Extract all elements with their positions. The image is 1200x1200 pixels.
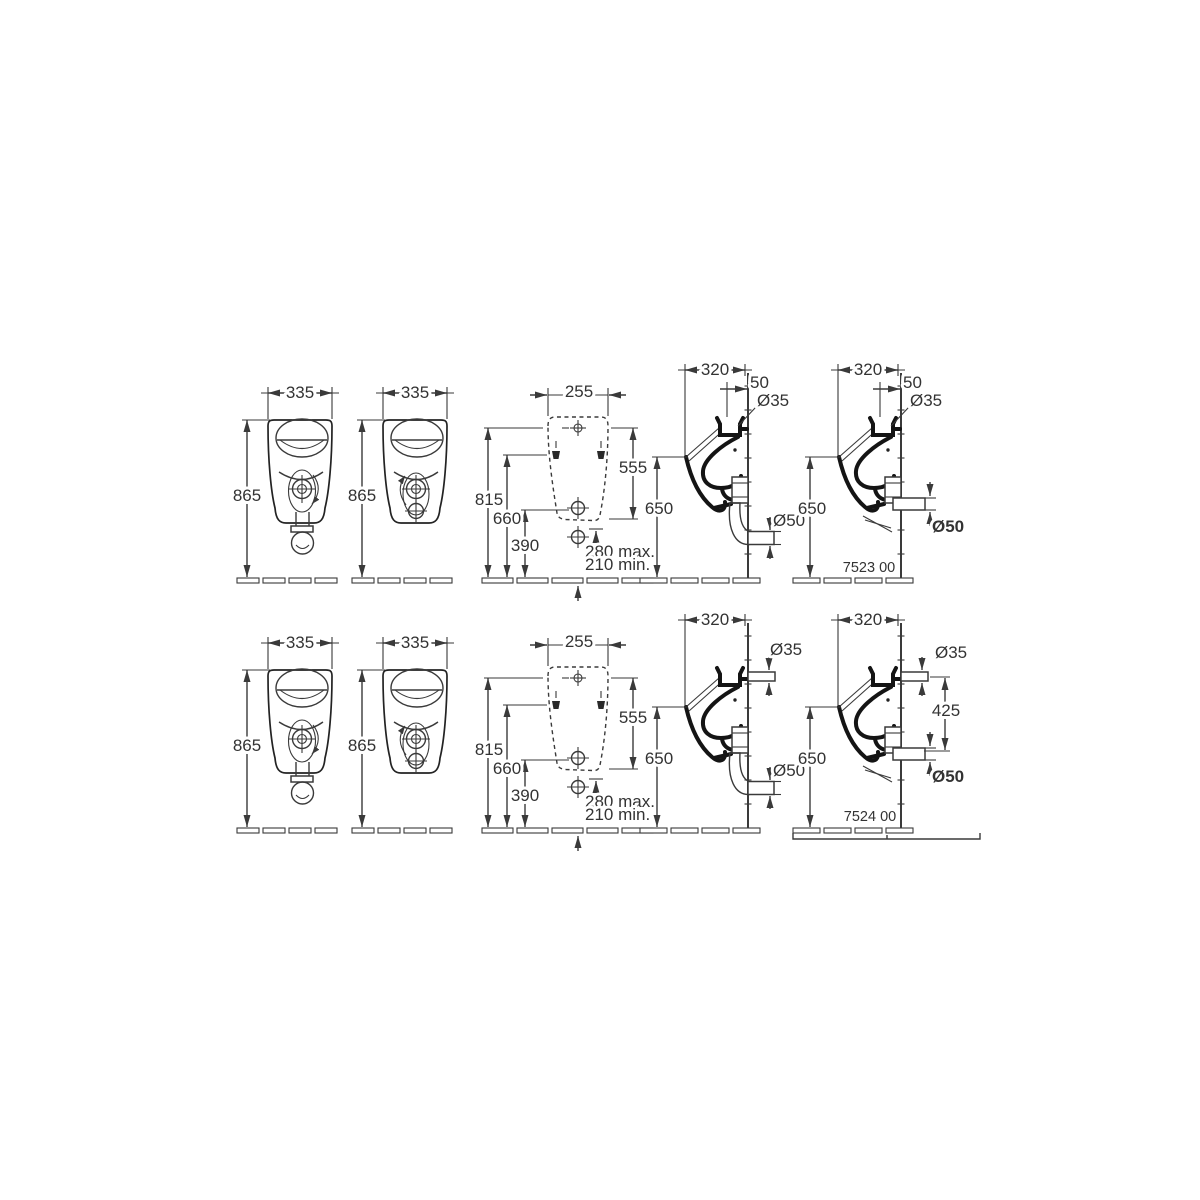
drain-diameter-label: Ø50 bbox=[932, 517, 964, 536]
dim-depth-label: 320 bbox=[854, 360, 882, 379]
row-variant-7524: 335 865 335 865 255 815 660 390 555 280 … bbox=[233, 610, 980, 851]
side-view-exposed-trap: 320 50 Ø35 650 Ø50 bbox=[640, 360, 805, 583]
sheet-border-mark bbox=[793, 833, 980, 839]
floor bbox=[482, 828, 653, 833]
dim-spread-label: 555 bbox=[619, 708, 647, 727]
urinal-profile bbox=[686, 418, 748, 511]
wall bbox=[745, 623, 752, 828]
outlet-min-label: 210 min. bbox=[585, 805, 650, 824]
urinal-body bbox=[383, 419, 447, 523]
floor bbox=[352, 828, 452, 833]
outlet-min-label: 210 min. bbox=[585, 555, 650, 574]
floor bbox=[640, 578, 760, 583]
dim-inlet-to-drain-label: 425 bbox=[932, 701, 960, 720]
mounting-dimensions-view: 255 815 660 390 555 280 max. 210 min. bbox=[475, 632, 655, 851]
dim-rim-height-label: 650 bbox=[798, 499, 826, 518]
floor bbox=[793, 578, 913, 583]
inlet-diameter-label: Ø35 bbox=[935, 643, 967, 662]
dim-width-label: 255 bbox=[565, 382, 593, 401]
dim-fixing-height-label: 660 bbox=[493, 759, 521, 778]
dim-depth-label: 320 bbox=[701, 610, 729, 629]
urinal-dimension-drawing: 335 865 335 865 255 815 660 390 555 280 … bbox=[0, 0, 1200, 1200]
front-view-concealed: 335 865 bbox=[348, 383, 454, 583]
side-view-exposed-trap: 320 Ø35 650 Ø50 bbox=[640, 610, 805, 833]
dim-rim-height-label: 650 bbox=[645, 749, 673, 768]
dim-width-label: 335 bbox=[286, 383, 314, 402]
urinal-body bbox=[268, 419, 332, 523]
dim-height-label: 865 bbox=[233, 736, 261, 755]
drain-diameter-label: Ø50 bbox=[932, 767, 964, 786]
urinal-body bbox=[383, 669, 447, 773]
dim-width-label: 335 bbox=[401, 633, 429, 652]
inlet-annotation bbox=[748, 657, 775, 696]
dim-inlet-offset-label: 50 bbox=[750, 373, 769, 392]
dim-inlet-height-label: 815 bbox=[475, 740, 503, 759]
floor bbox=[352, 578, 452, 583]
front-view-concealed: 335 865 bbox=[348, 633, 454, 833]
dim-spread-label: 555 bbox=[619, 458, 647, 477]
floor bbox=[237, 578, 337, 583]
model-number: 7523 00 bbox=[843, 560, 895, 576]
front-view-flush-valve: 335 865 bbox=[233, 633, 339, 833]
inlet-annotation bbox=[901, 657, 928, 696]
dim-depth-label: 320 bbox=[854, 610, 882, 629]
inlet-diameter-label: Ø35 bbox=[910, 391, 942, 410]
front-view-flush-valve: 335 865 bbox=[233, 383, 339, 583]
model-number: 7524 00 bbox=[844, 809, 896, 825]
side-view-concealed-outlet: 320 50 Ø35 650 Ø50 7523 00 bbox=[793, 360, 964, 583]
dim-height-label: 865 bbox=[348, 736, 376, 755]
dim-outlet-height-label: 390 bbox=[511, 536, 539, 555]
mounting-dimensions-view: 255 815 660 390 555 280 max. 210 min. bbox=[475, 382, 655, 601]
dim-height-label: 865 bbox=[233, 486, 261, 505]
dim-rim-height-label: 650 bbox=[798, 749, 826, 768]
dim-rim-height-label: 650 bbox=[645, 499, 673, 518]
wall bbox=[745, 373, 752, 578]
wall bbox=[898, 623, 905, 828]
urinal-profile bbox=[839, 668, 901, 761]
wall bbox=[898, 373, 905, 578]
floor bbox=[793, 828, 913, 833]
dim-fixing-height-label: 660 bbox=[493, 509, 521, 528]
floor bbox=[482, 578, 653, 583]
floor bbox=[640, 828, 760, 833]
dim-inlet-height-label: 815 bbox=[475, 490, 503, 509]
dim-width-label: 255 bbox=[565, 632, 593, 651]
urinal-profile bbox=[839, 418, 901, 511]
inlet-diameter-label: Ø35 bbox=[770, 640, 802, 659]
dim-outlet-height-label: 390 bbox=[511, 786, 539, 805]
inlet-diameter-label: Ø35 bbox=[757, 391, 789, 410]
technical-drawing-sheet: 335 865 335 865 255 815 660 390 555 280 … bbox=[0, 0, 1200, 1200]
row-variant-7523: 335 865 335 865 255 815 660 390 555 280 … bbox=[233, 360, 964, 601]
dim-height-label: 865 bbox=[348, 486, 376, 505]
dim-width-label: 335 bbox=[286, 633, 314, 652]
dim-depth-label: 320 bbox=[701, 360, 729, 379]
floor bbox=[237, 828, 337, 833]
side-view-concealed-outlet: 320 Ø35 425 650 Ø50 7524 00 bbox=[793, 610, 967, 833]
urinal-body bbox=[268, 669, 332, 773]
urinal-profile bbox=[686, 668, 748, 761]
dim-inlet-offset-label: 50 bbox=[903, 373, 922, 392]
dim-width-label: 335 bbox=[401, 383, 429, 402]
